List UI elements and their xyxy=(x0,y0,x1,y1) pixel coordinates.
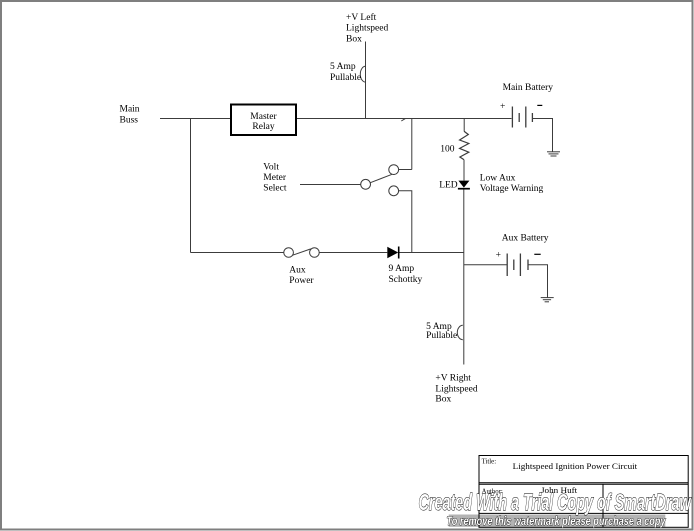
svg-text:Relay: Relay xyxy=(252,122,274,132)
svg-text:Voltage Warning: Voltage Warning xyxy=(480,184,544,194)
svg-text:Select: Select xyxy=(263,184,287,194)
svg-text:Box: Box xyxy=(346,35,362,45)
svg-text:Schottky: Schottky xyxy=(389,275,423,285)
svg-text:Title:: Title: xyxy=(482,459,497,466)
svg-text:100: 100 xyxy=(440,145,455,155)
svg-text:Aux: Aux xyxy=(289,265,306,275)
svg-text:Meter: Meter xyxy=(263,173,287,183)
svg-text:+V Right: +V Right xyxy=(435,373,471,383)
svg-text:Buss: Buss xyxy=(120,116,139,126)
svg-text:Volt: Volt xyxy=(263,162,279,172)
svg-text:9 Amp: 9 Amp xyxy=(389,264,415,274)
svg-text:Box: Box xyxy=(435,395,451,405)
svg-text:Created With a Trial Copy of S: Created With a Trial Copy of SmartDraw xyxy=(419,489,692,515)
svg-text:5 Amp: 5 Amp xyxy=(330,62,356,72)
svg-text:+: + xyxy=(500,102,505,112)
svg-text:Power: Power xyxy=(289,276,314,286)
svg-text:Master: Master xyxy=(250,112,277,122)
svg-text:Lightspeed: Lightspeed xyxy=(435,385,477,395)
svg-text:+: + xyxy=(496,251,501,261)
svg-text:Pullable: Pullable xyxy=(330,73,361,83)
svg-text:Main: Main xyxy=(120,105,140,115)
svg-text:Pullable: Pullable xyxy=(426,331,457,341)
svg-text:Low Aux: Low Aux xyxy=(480,174,516,184)
svg-text:Lightspeed Ignition Power Circ: Lightspeed Ignition Power Circuit xyxy=(513,462,638,471)
svg-text:Aux Battery: Aux Battery xyxy=(502,234,549,244)
svg-text:Lightspeed: Lightspeed xyxy=(346,23,388,33)
svg-text:+V Left: +V Left xyxy=(346,12,377,23)
svg-text:Main Battery: Main Battery xyxy=(503,83,554,93)
svg-text:To remove this watermark pleas: To remove this watermark please purchase… xyxy=(447,516,666,528)
svg-text:LED: LED xyxy=(439,181,458,191)
